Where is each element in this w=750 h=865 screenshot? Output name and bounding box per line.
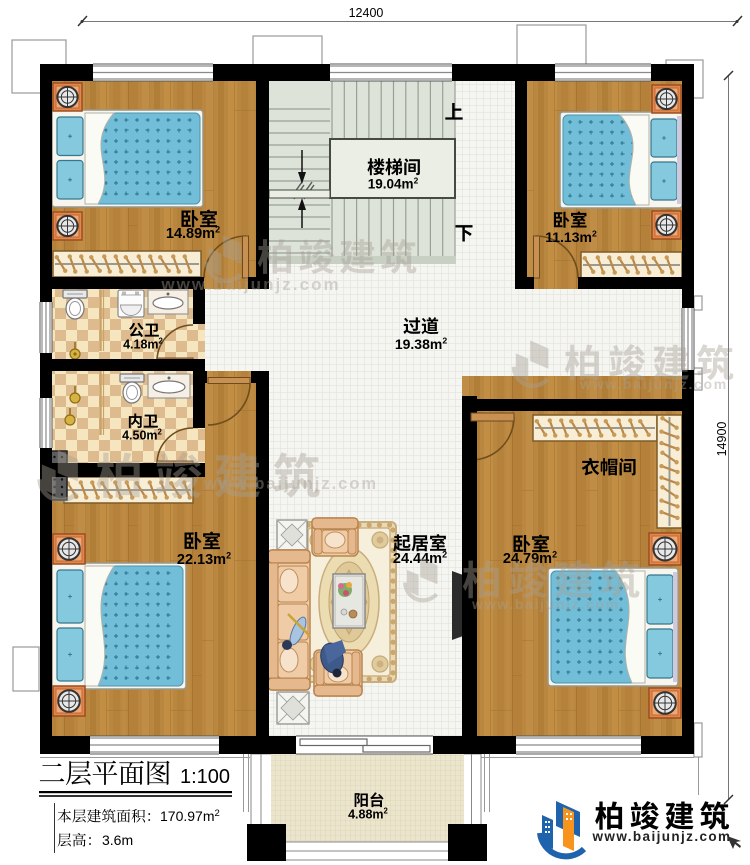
- svg-text:4.18m2: 4.18m2: [123, 337, 163, 352]
- svg-text:www.baijunjz.com: www.baijunjz.com: [203, 475, 378, 493]
- svg-text:www.baijunjz.com: www.baijunjz.com: [592, 829, 732, 844]
- svg-text:www.baijunjz.com: www.baijunjz.com: [471, 596, 620, 612]
- svg-text:19.38m2: 19.38m2: [395, 336, 447, 352]
- svg-text:22.13m2: 22.13m2: [177, 551, 231, 569]
- svg-text:19.04m2: 19.04m2: [368, 176, 419, 192]
- svg-text:14900: 14900: [715, 422, 729, 457]
- svg-text:4.50m2: 4.50m2: [122, 428, 162, 443]
- svg-text:170.97m2: 170.97m2: [160, 808, 220, 824]
- svg-text:11.13m2: 11.13m2: [545, 229, 597, 245]
- svg-text:1:100: 1:100: [180, 766, 230, 788]
- svg-text:www.baijunjz.com: www.baijunjz.com: [160, 275, 340, 294]
- svg-text:3.6m: 3.6m: [102, 832, 133, 848]
- svg-text:12400: 12400: [349, 6, 384, 20]
- svg-text:www.baijunjz.com: www.baijunjz.com: [579, 376, 728, 392]
- svg-text:24.44m2: 24.44m2: [393, 550, 447, 568]
- svg-text:14.89m2: 14.89m2: [166, 225, 220, 243]
- svg-text:4.88m2: 4.88m2: [348, 807, 388, 822]
